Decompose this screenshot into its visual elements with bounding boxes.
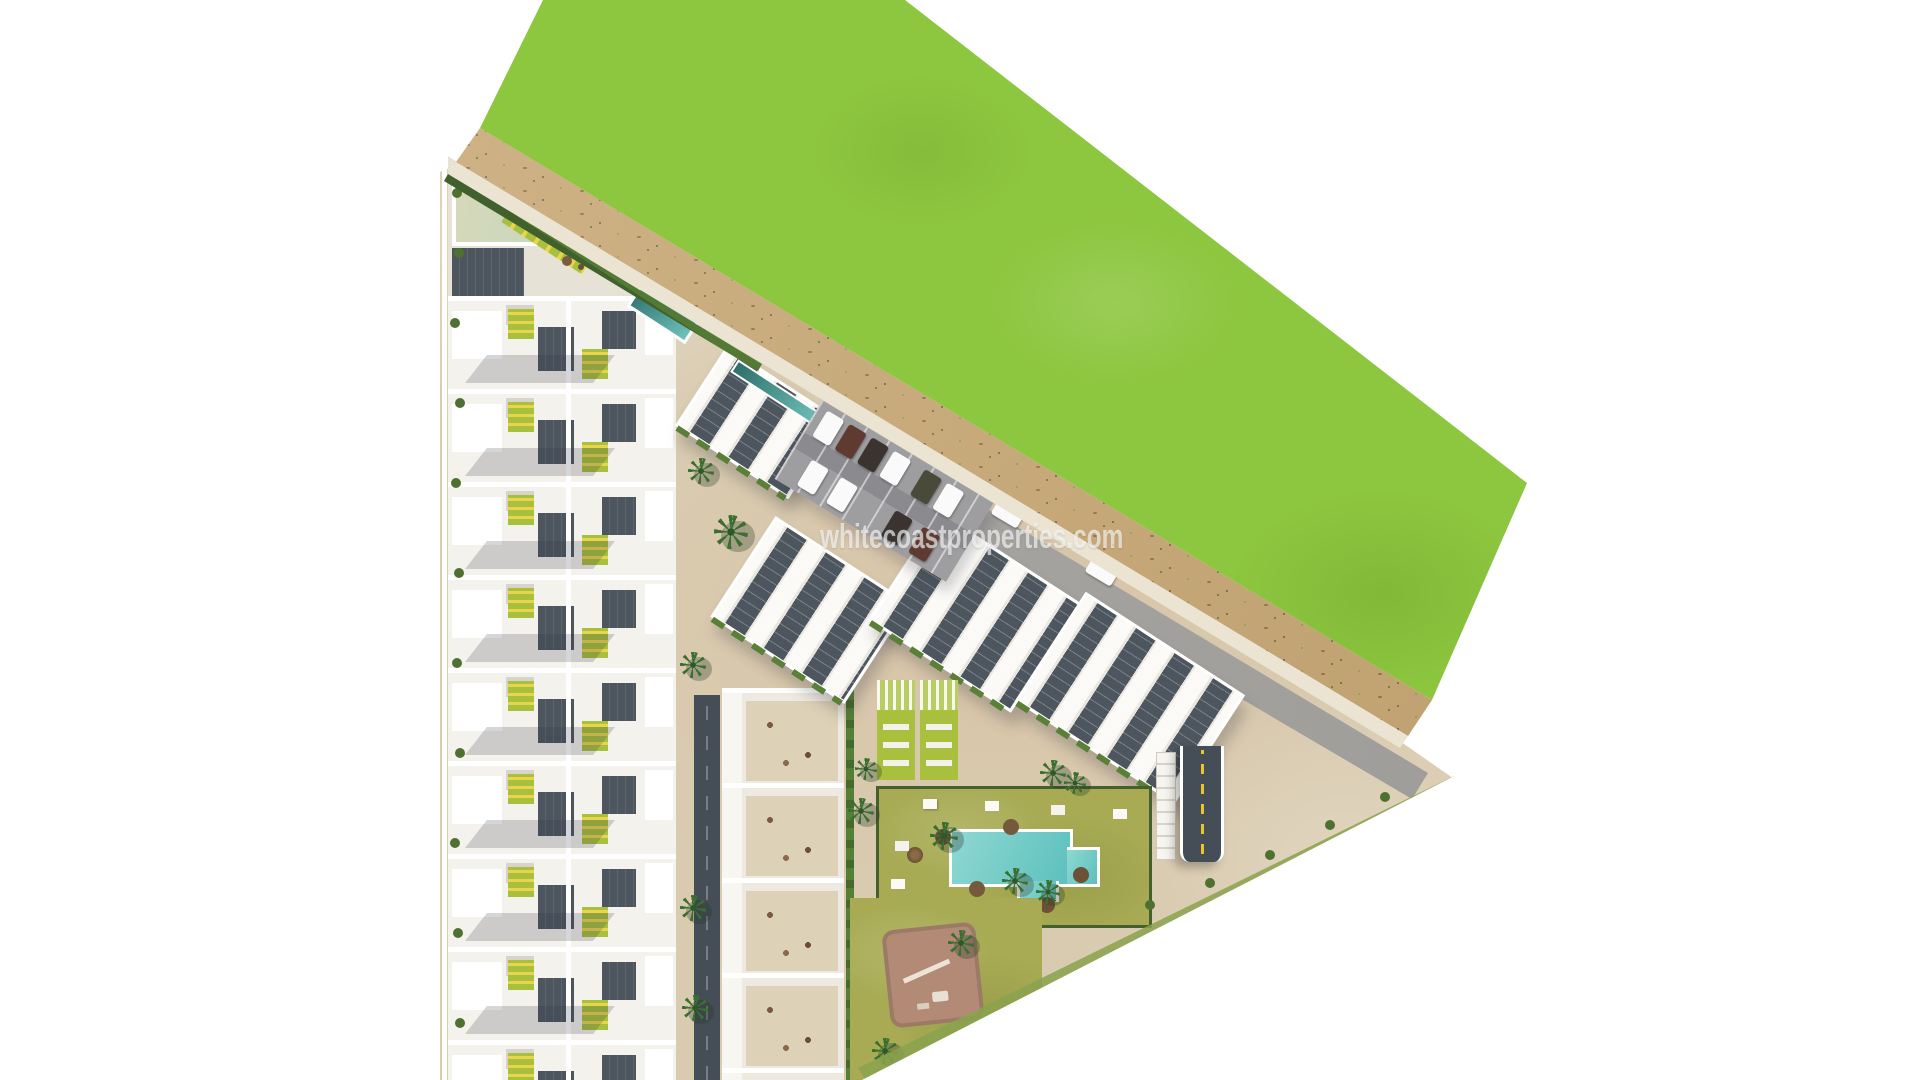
townhouse-unit [448,482,676,575]
communal-pool-arm [1067,847,1100,887]
apartment-row-unit [722,1068,844,1080]
palm-tree [1040,760,1066,786]
wicker-umbrellas [907,847,923,863]
palm-tree [688,458,714,484]
palm-tree [1002,868,1028,894]
townhouse-unit [448,854,676,947]
parked-car [826,477,859,513]
parked-car [797,459,830,495]
garage-ramp [1180,746,1224,862]
pergola-terrace [452,248,524,296]
palm-tree [680,895,706,921]
townhouse-unit [448,947,676,1040]
palm-tree [855,758,877,780]
townhouse-unit [448,668,676,761]
watermark: whitecoastproperties.com [820,518,1123,557]
apartment-row-unit [722,878,844,973]
boundary-wall [442,156,447,1080]
palm-tree [714,515,748,549]
bike-shed [1156,752,1176,860]
townhouse-unit [448,389,676,482]
pergola-lawn [877,680,915,780]
site-plan-rendering: whitecoastproperties.com [0,0,1920,1080]
apartment-row-unit [722,973,844,1068]
townhouse-unit [448,575,676,668]
pergola-lawn [920,680,958,780]
cabana-daybeds [923,799,937,809]
apartment-row-unit [722,783,844,878]
palm-tree [680,652,706,678]
townhouse-unit [448,1040,676,1080]
palm-tree [948,930,974,956]
palm-tree [848,798,874,824]
palm-tree [1036,880,1060,904]
palm-tree [682,995,708,1021]
apartment-row-unit [722,688,844,783]
edge-shrubs [1145,900,1155,910]
townhouse-unit [448,761,676,854]
palm-tree [930,822,958,850]
palm-tree [1064,772,1086,794]
